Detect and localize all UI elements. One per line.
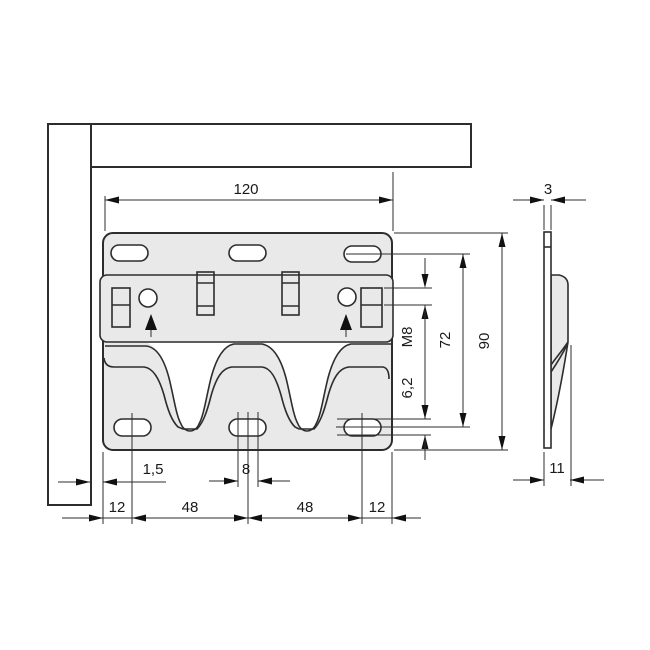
dim-label-height: 90 xyxy=(476,333,493,350)
dim-label-width: 120 xyxy=(233,181,258,198)
dim-label-vertical-spacing: 72 xyxy=(437,332,454,349)
dim-label-margin-left: 12 xyxy=(109,499,126,516)
mounting-slot-top-left xyxy=(111,245,148,261)
dim-label-edge-gap: 1,5 xyxy=(143,461,164,478)
m8-hole-right xyxy=(338,288,356,306)
center-band xyxy=(100,275,393,342)
dim-label-slot-width: 8 xyxy=(242,461,250,478)
front-view xyxy=(100,233,393,450)
dim-label-pitch-right: 48 xyxy=(297,499,314,516)
side-panel xyxy=(48,124,91,505)
technical-drawing: 120 3 90 72 xyxy=(0,0,650,650)
dim-label-slot-height: 6,2 xyxy=(399,378,416,399)
top-panel xyxy=(91,124,471,167)
dim-label-pitch-left: 48 xyxy=(182,499,199,516)
side-plate xyxy=(544,232,551,448)
technical-drawing-page: 120 3 90 72 xyxy=(0,0,650,650)
dim-label-depth: 11 xyxy=(549,460,565,477)
dim-label-thickness: 3 xyxy=(544,181,552,198)
dim-label-margin-right: 12 xyxy=(369,499,386,516)
m8-hole-left xyxy=(139,289,157,307)
mounting-slot-top-center xyxy=(229,245,266,261)
dim-label-thread: M8 xyxy=(399,327,416,348)
